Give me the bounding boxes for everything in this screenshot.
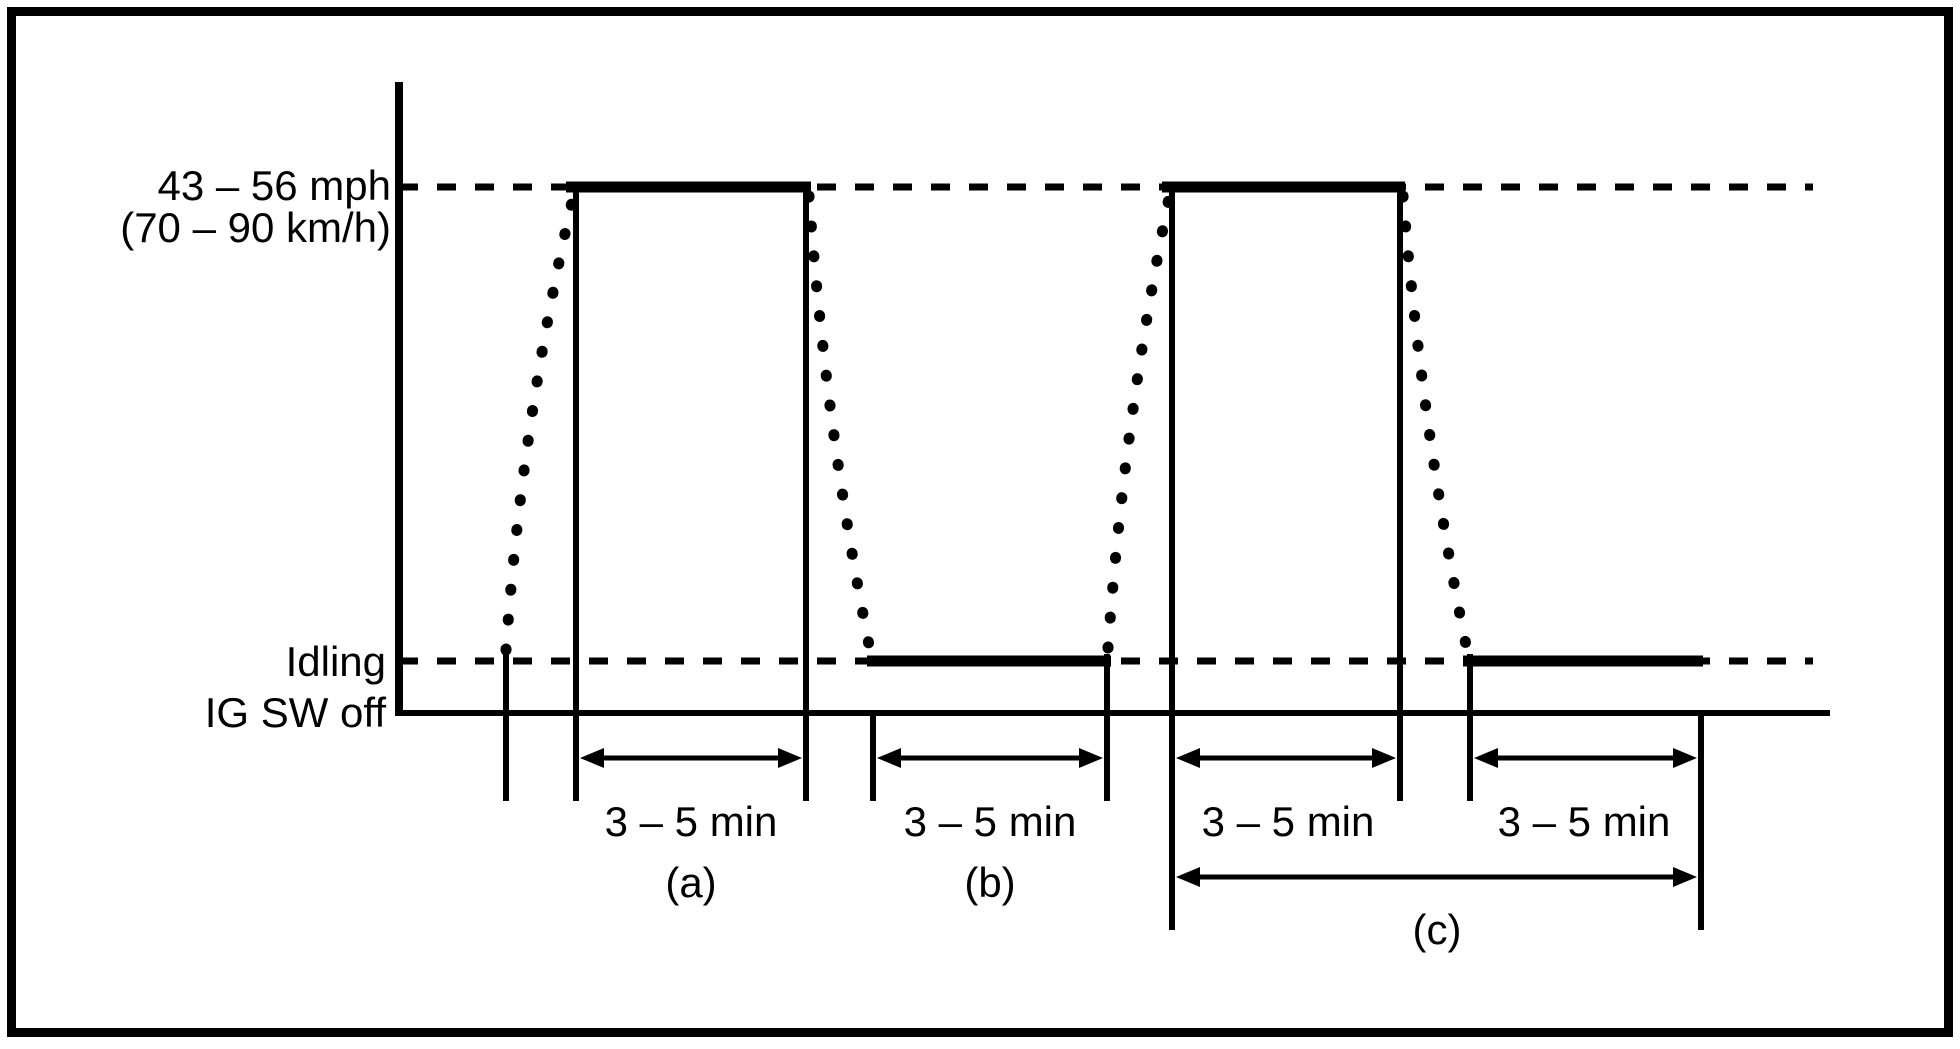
speed-level-label-line1: 43 – 56 mph xyxy=(157,162,391,209)
idling-level-label: Idling xyxy=(286,638,386,685)
interval-a-tag-label: (a) xyxy=(665,859,716,906)
interval-c1-duration-label: 3 – 5 min xyxy=(1202,798,1375,845)
interval-b-duration-label: 3 – 5 min xyxy=(904,798,1077,845)
drive-pattern-svg: 43 – 56 mph (70 – 90 km/h) Idling IG SW … xyxy=(0,0,1960,1044)
drive-pattern-figure: 43 – 56 mph (70 – 90 km/h) Idling IG SW … xyxy=(0,0,1960,1044)
interval-c2-duration-label: 3 – 5 min xyxy=(1498,798,1671,845)
speed-level-label-line2: (70 – 90 km/h) xyxy=(120,204,391,251)
interval-c-tag-label: (c) xyxy=(1413,906,1462,953)
ig-sw-off-level-label: IG SW off xyxy=(205,689,387,736)
interval-a-duration-label: 3 – 5 min xyxy=(605,798,778,845)
interval-b-tag-label: (b) xyxy=(964,859,1015,906)
